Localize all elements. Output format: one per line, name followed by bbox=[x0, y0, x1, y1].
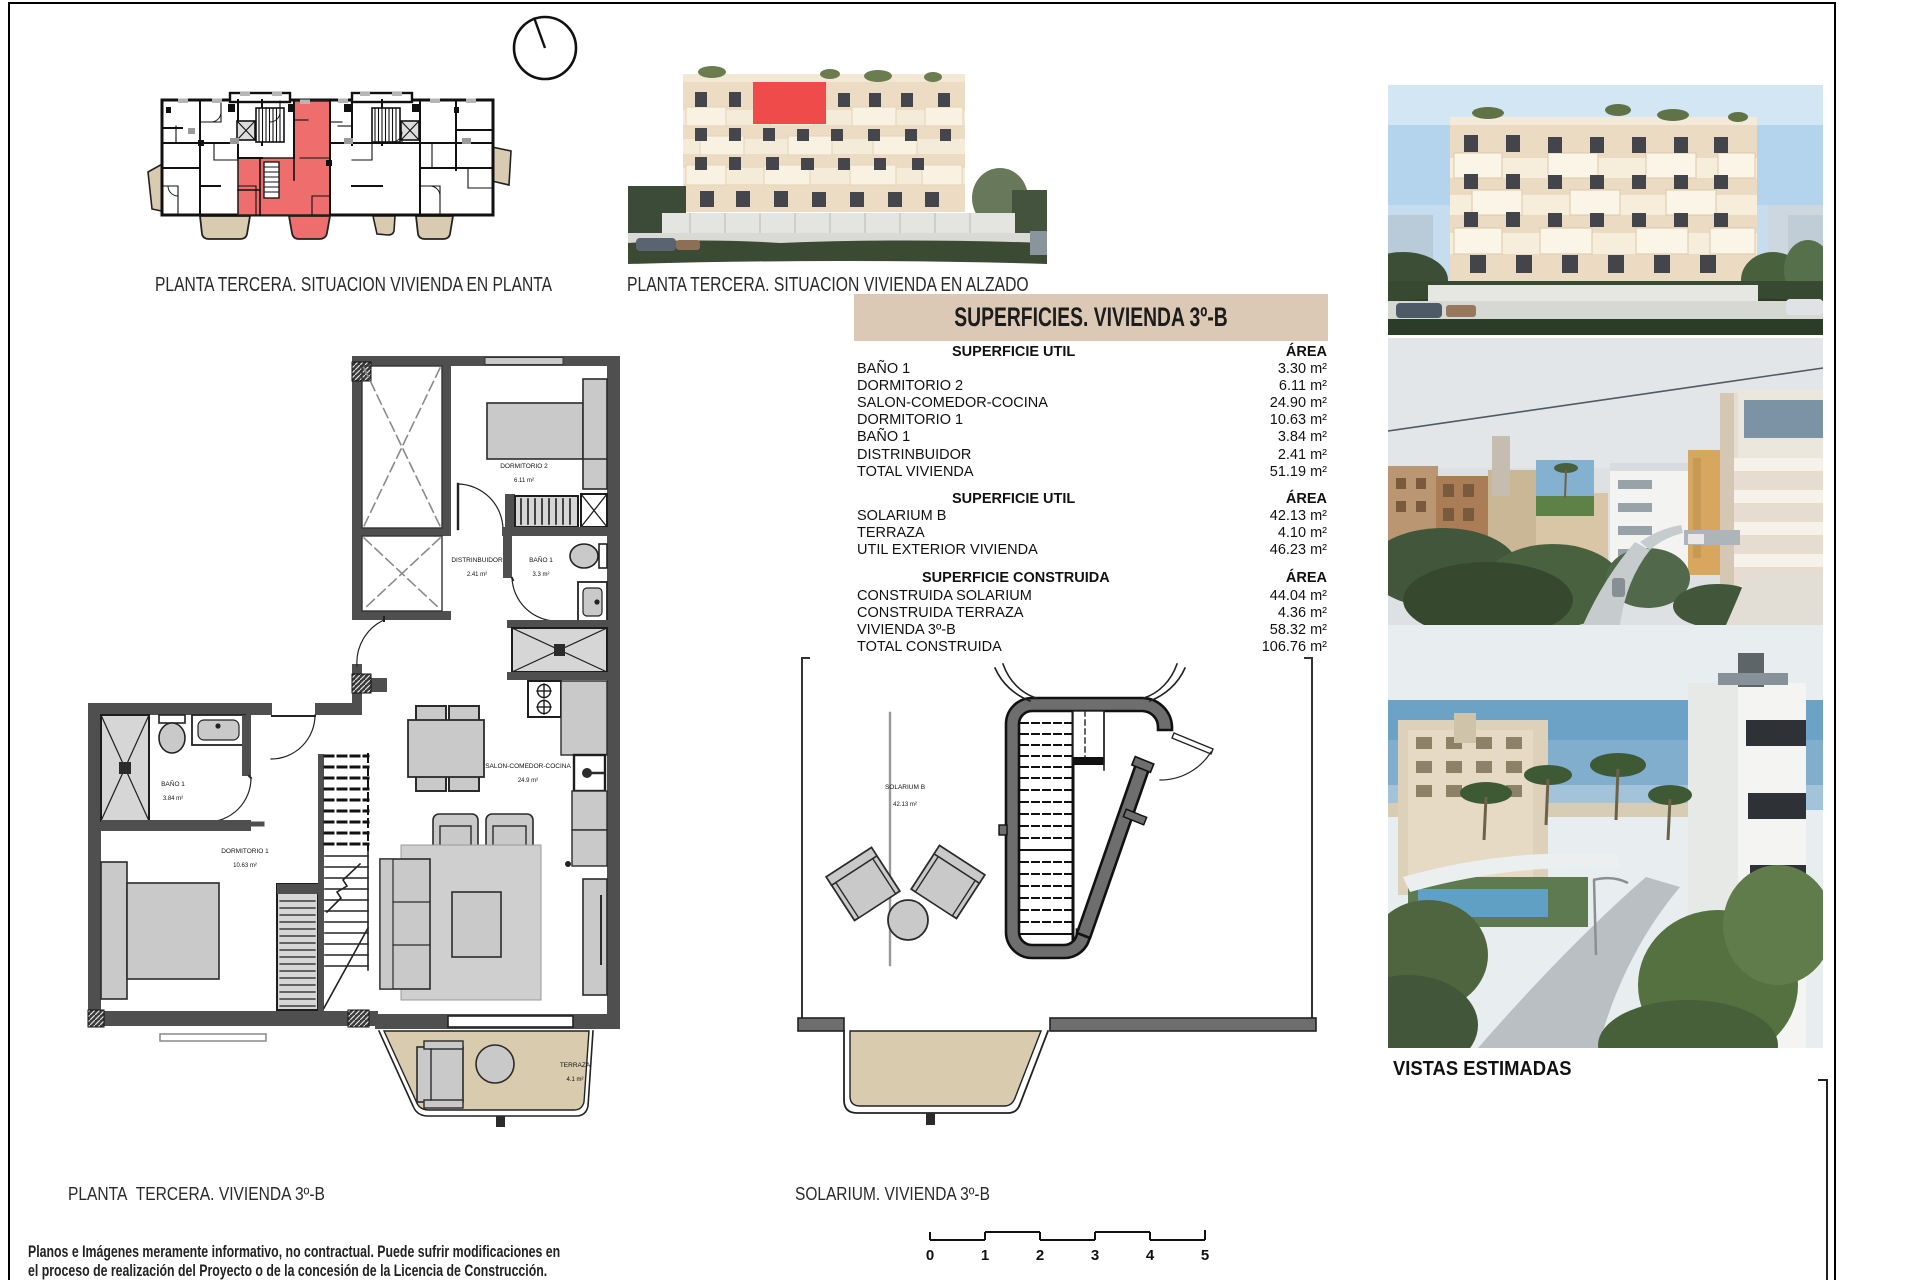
svg-text:42.13 m²: 42.13 m² bbox=[893, 802, 917, 808]
svg-text:DORMITORIO 2: DORMITORIO 2 bbox=[500, 463, 548, 470]
svg-text:0: 0 bbox=[926, 1247, 934, 1264]
svg-text:BAÑO 1: BAÑO 1 bbox=[529, 555, 553, 564]
svg-text:SALON-COMEDOR-COCINA: SALON-COMEDOR-COCINA bbox=[485, 763, 571, 770]
svg-text:3.3 m²: 3.3 m² bbox=[532, 572, 549, 578]
svg-text:DISTRINBUIDOR: DISTRINBUIDOR bbox=[451, 557, 503, 564]
svg-text:6.11 m²: 6.11 m² bbox=[514, 478, 534, 484]
svg-text:1: 1 bbox=[981, 1247, 989, 1264]
svg-text:TERRAZA: TERRAZA bbox=[560, 1062, 591, 1069]
svg-text:4.1 m²: 4.1 m² bbox=[566, 1077, 583, 1083]
svg-text:DORMITORIO 1: DORMITORIO 1 bbox=[221, 848, 269, 855]
svg-text:3.84 m²: 3.84 m² bbox=[163, 796, 183, 802]
svg-text:24.9 m²: 24.9 m² bbox=[518, 778, 538, 784]
svg-text:5: 5 bbox=[1201, 1247, 1209, 1264]
svg-text:SOLARIUM B: SOLARIUM B bbox=[885, 784, 925, 791]
svg-text:BAÑO 1: BAÑO 1 bbox=[161, 779, 185, 788]
svg-text:2: 2 bbox=[1036, 1247, 1044, 1264]
svg-text:10.63 m²: 10.63 m² bbox=[233, 863, 257, 869]
svg-text:3: 3 bbox=[1091, 1247, 1099, 1264]
svg-text:4: 4 bbox=[1146, 1247, 1155, 1264]
svg-text:2.41 m²: 2.41 m² bbox=[467, 572, 487, 578]
